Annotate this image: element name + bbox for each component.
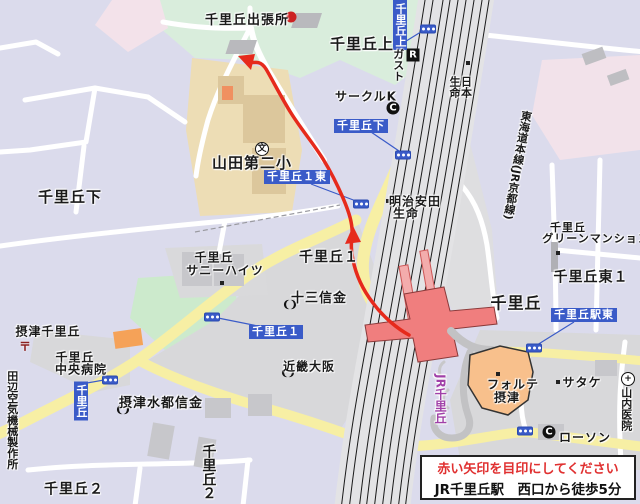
- intersection-label-senrioka-1: 千里丘１: [249, 325, 303, 339]
- intersection-label-senrioka: 千里丘: [74, 382, 88, 421]
- label-yamada-elementary: 山田第二小: [212, 156, 292, 172]
- label-senrioka-2-a: 千里丘２: [44, 483, 104, 498]
- label-circle-k: サークルK: [335, 91, 397, 104]
- traffic-signal-icon: [517, 427, 533, 436]
- label-nippon-life-col1: 日本: [460, 76, 473, 98]
- intersection-label-senrioka-kami: 千里丘上: [393, 0, 407, 50]
- label-tanabe-factory: 田辺空気機械製作所: [6, 371, 18, 470]
- intersection-label-senrioka-shimo: 千里丘下: [334, 119, 388, 133]
- label-kinki-osaka: 近畿大阪: [283, 361, 335, 374]
- label-nippon-life-col2: 生命: [448, 76, 461, 98]
- label-forte-settsu-1: フォルテ: [487, 379, 539, 392]
- label-forte-settsu-2: 摂津: [494, 392, 520, 405]
- restaurant-icon: R: [407, 49, 420, 62]
- poi-dot: [496, 372, 500, 376]
- traffic-signal-icon: [353, 200, 369, 209]
- label-central-hospital-2: 中央病院: [55, 364, 107, 377]
- label-senrioka-shimo-area: 千里丘下: [38, 190, 102, 206]
- label-senrioka-2-b: 千里丘２: [201, 444, 216, 500]
- traffic-signal-icon: [204, 313, 220, 322]
- convenience-store-icon: C: [543, 426, 556, 439]
- label-senrioka-higashi-1: 千里丘東１: [554, 271, 629, 286]
- poi-dot: [556, 380, 560, 384]
- poi-dot: [466, 61, 470, 65]
- access-map: R C C 文 + 〒 千里丘上 千里丘下 千里丘１東 千里丘１ 千里丘 千里丘…: [0, 0, 640, 504]
- poi-dot: [220, 281, 224, 285]
- label-nippon-life: 日本生命: [448, 76, 471, 98]
- info-line-red: 赤い矢印を目印にしてください: [437, 458, 618, 477]
- hospital-icon: +: [621, 372, 635, 386]
- label-jr-senrioka-station: JR千里丘: [434, 374, 447, 424]
- label-meiji-yasuda-2: 生命: [393, 208, 419, 221]
- label-yamauchi-clinic: 山内医院: [620, 387, 632, 431]
- label-green-mansion-2: グリーンマンション: [542, 233, 640, 245]
- intersection-label-senrioka-eki-higashi: 千里丘駅東: [551, 308, 617, 322]
- label-senrioka-1-area: 千里丘１: [299, 251, 359, 266]
- post-office-icon: 〒: [19, 338, 31, 355]
- info-line-station: JR千里丘駅 西口から徒歩5分: [435, 478, 622, 498]
- label-settsu-senrioka: 摂津千里丘: [15, 326, 80, 339]
- label-branch-office: 千里丘出張所: [205, 14, 289, 28]
- traffic-signal-icon: [420, 25, 436, 34]
- traffic-signal-icon: [102, 376, 118, 385]
- label-senrioka-east-area: 千里丘: [490, 296, 541, 313]
- poi-dot: [556, 251, 560, 255]
- label-suito-shinkin: 摂津水都信金: [119, 397, 203, 411]
- traffic-signal-icon: [526, 344, 542, 353]
- label-satake: サタケ: [562, 377, 601, 390]
- label-sunny-heights-2: サニーハイツ: [186, 265, 264, 278]
- label-sunny-heights-1: 千里丘: [194, 252, 233, 265]
- label-senrioka-kami: 千里丘上: [330, 37, 394, 53]
- label-gusto: ガスト: [392, 49, 404, 82]
- label-juso-shinkin: 十三信金: [291, 292, 347, 306]
- traffic-signal-icon: [395, 151, 411, 160]
- route-info-box: 赤い矢印を目印にしてください JR千里丘駅 西口から徒歩5分: [420, 455, 636, 500]
- label-lawson: ローソン: [559, 432, 611, 445]
